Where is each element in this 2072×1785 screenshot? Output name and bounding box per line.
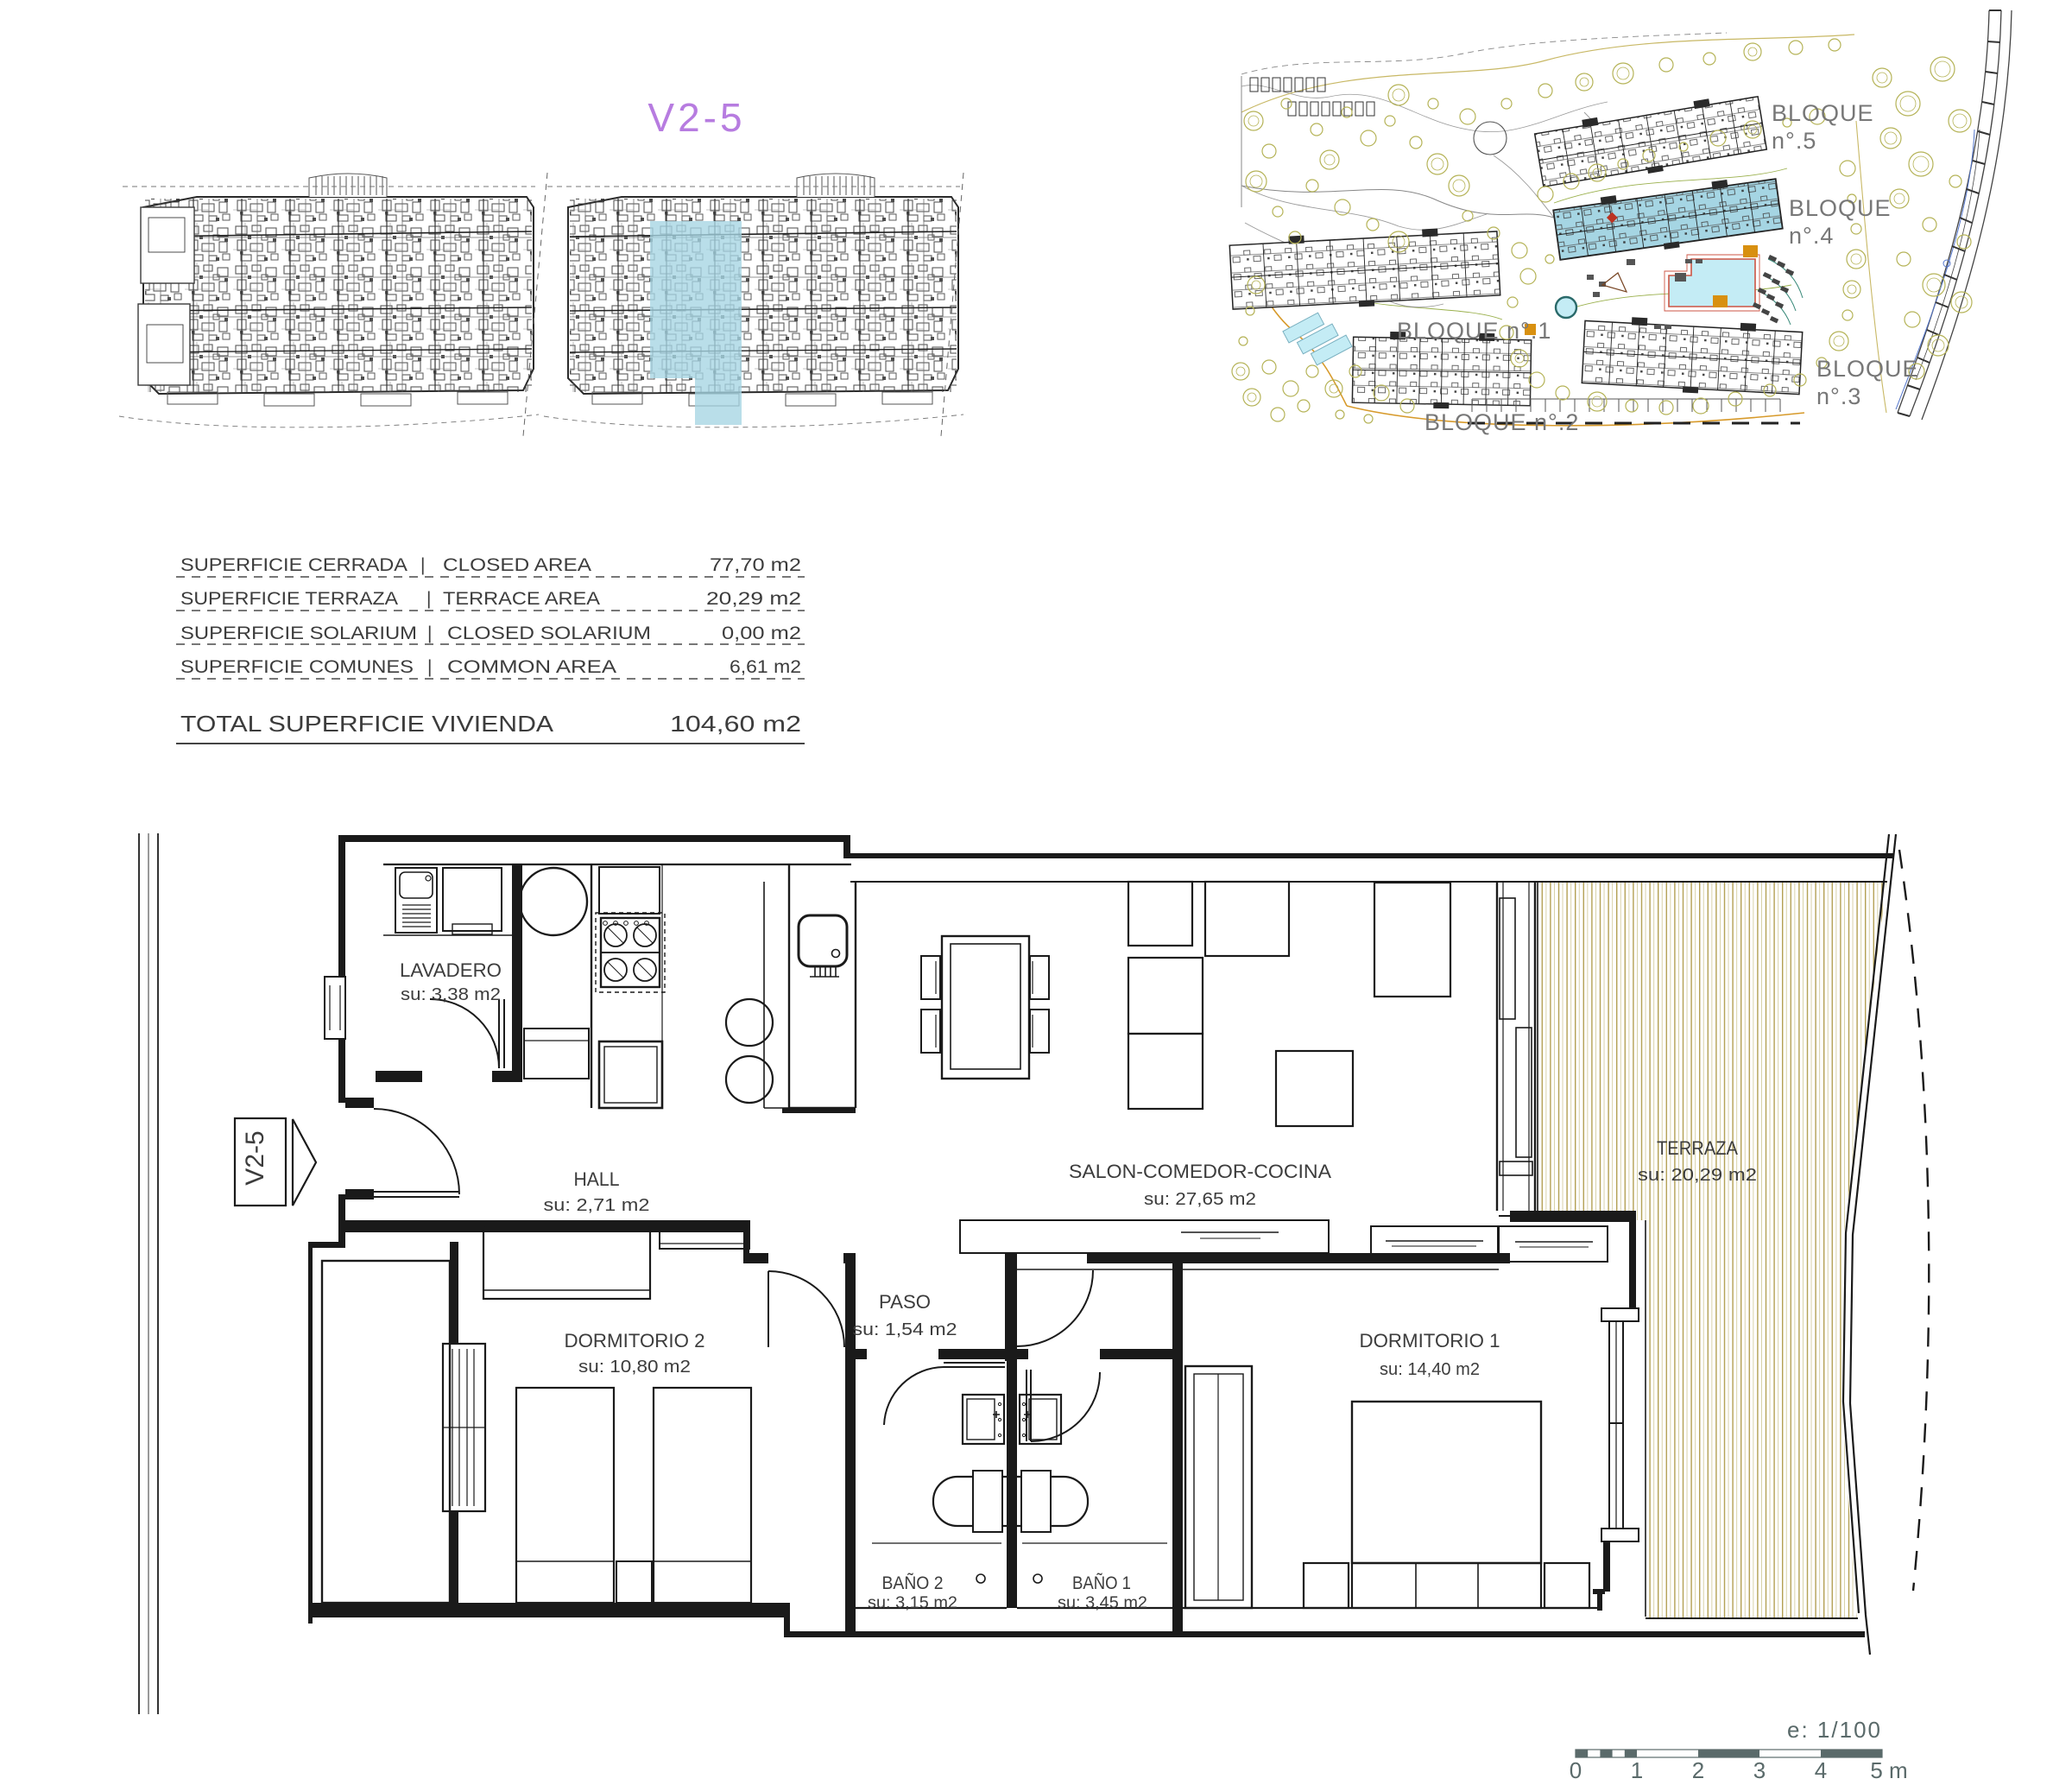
svg-text:su: 20,29 m2: su: 20,29 m2 [1638,1166,1757,1185]
svg-text:SUPERFICIE COMUNES: SUPERFICIE COMUNES [180,657,414,677]
svg-text:BLOQUE: BLOQUE [1772,100,1874,126]
svg-text:CLOSED SOLARIUM: CLOSED SOLARIUM [447,623,651,643]
svg-text:n°.5: n°.5 [1772,128,1816,154]
svg-text:su: 2,71 m2: su: 2,71 m2 [544,1196,650,1215]
svg-text:su: 10,80 m2: su: 10,80 m2 [578,1358,691,1377]
svg-text:1: 1 [1631,1757,1643,1783]
svg-text:2: 2 [1692,1757,1704,1783]
svg-text:BLOQUE: BLOQUE [1789,195,1892,221]
svg-text:BLOQUE n°.2: BLOQUE n°.2 [1424,409,1579,435]
svg-text:e: 1/100: e: 1/100 [1787,1717,1882,1743]
svg-text:su: 1,54 m2: su: 1,54 m2 [853,1320,957,1339]
svg-text:SUPERFICIE CERRADA: SUPERFICIE CERRADA [180,555,407,575]
svg-text:BLOQUE n°.1: BLOQUE n°.1 [1397,318,1551,344]
svg-text:su: 14,40 m2: su: 14,40 m2 [1380,1360,1480,1379]
svg-text:su: 3,45 m2: su: 3,45 m2 [1058,1594,1147,1612]
svg-text:SUPERFICIE SOLARIUM: SUPERFICIE SOLARIUM [180,623,417,643]
svg-text:n°.4: n°.4 [1789,223,1834,249]
svg-text:|: | [427,657,432,677]
svg-text:|: | [426,589,431,609]
svg-text:LAVADERO: LAVADERO [400,959,502,981]
svg-text:|: | [420,555,425,575]
svg-text:104,60 m2: 104,60 m2 [670,711,801,737]
svg-text:BLOQUE: BLOQUE [1816,356,1919,382]
svg-text:6,61 m2: 6,61 m2 [730,657,801,677]
svg-text:CLOSED AREA: CLOSED AREA [443,555,591,575]
svg-text:4: 4 [1815,1757,1827,1783]
svg-text:0: 0 [1570,1757,1582,1783]
svg-text:TERRAZA: TERRAZA [1657,1137,1738,1159]
svg-text:SUPERFICIE TERRAZA: SUPERFICIE TERRAZA [180,589,398,609]
svg-text:TOTAL SUPERFICIE VIVIENDA: TOTAL SUPERFICIE VIVIENDA [180,711,554,737]
svg-text:5 m: 5 m [1870,1757,1907,1783]
svg-text:77,70 m2: 77,70 m2 [710,555,801,575]
svg-text:n°.3: n°.3 [1816,383,1861,409]
svg-text:V2-5: V2-5 [241,1130,269,1185]
svg-text:PASO: PASO [879,1291,931,1313]
svg-text:SALON-COMEDOR-COCINA: SALON-COMEDOR-COCINA [1069,1161,1331,1182]
svg-text:|: | [427,623,432,643]
svg-text:BAÑO 2: BAÑO 2 [882,1573,944,1593]
svg-text:0,00 m2: 0,00 m2 [722,623,801,643]
svg-text:su: 27,65 m2: su: 27,65 m2 [1144,1190,1256,1209]
svg-text:HALL: HALL [574,1168,620,1190]
svg-text:su: 3,38 m2: su: 3,38 m2 [401,985,501,1004]
svg-text:3: 3 [1753,1757,1766,1783]
svg-text:BAÑO 1: BAÑO 1 [1072,1573,1131,1593]
svg-text:DORMITORIO 1: DORMITORIO 1 [1360,1330,1500,1351]
svg-text:DORMITORIO 2: DORMITORIO 2 [565,1330,705,1351]
svg-text:COMMON AREA: COMMON AREA [447,657,616,677]
svg-text:TERRACE AREA: TERRACE AREA [443,589,600,609]
svg-text:V2-5: V2-5 [647,95,745,140]
svg-text:su: 3,15 m2: su: 3,15 m2 [868,1594,957,1612]
svg-text:20,29 m2: 20,29 m2 [706,589,801,609]
